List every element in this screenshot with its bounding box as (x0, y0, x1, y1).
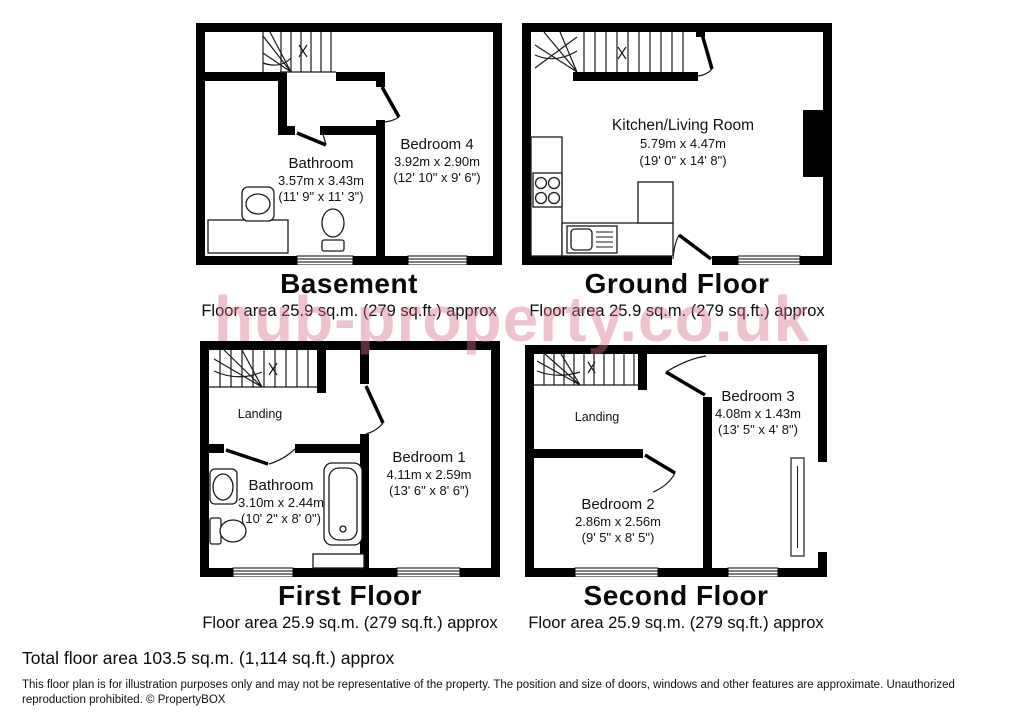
room-dim-m-bedroom3: 4.08m x 1.43m (715, 406, 801, 421)
floorplan-canvas: Bathroom 3.57m x 3.43m (11' 9" x 11' 3")… (0, 0, 1024, 717)
room-dim-m-bathroom: 3.10m x 2.44m (238, 495, 324, 510)
ground-window (738, 256, 800, 265)
room-dim-m-bedroom1: 4.11m x 2.59m (386, 467, 471, 482)
room-label-bedroom3: Bedroom 3 (721, 388, 794, 405)
second-floor-plan: Landing Bedroom 3 4.08m x 1.43m (13' 5" … (525, 345, 827, 577)
room-label-landing: Landing (238, 407, 283, 421)
kitchen-sink-fixture (567, 226, 617, 253)
room-dim-ft-bedroom1: (13' 6" x 8' 6") (389, 483, 469, 498)
room-label-landing: Landing (575, 410, 620, 424)
room-dim-ft-bathroom: (10' 2" x 8' 0") (241, 511, 321, 526)
ground-floor-title: Ground Floor (522, 268, 832, 300)
room-dim-ft-bedroom2: (9' 5" x 8' 5") (582, 530, 655, 545)
chimney-breast (803, 110, 823, 177)
basement-sink-fixture (242, 187, 274, 221)
room-dim-m-bathroom: 3.57m x 3.43m (278, 173, 364, 188)
room-label-bathroom: Bathroom (288, 155, 353, 172)
room-label-bedroom1: Bedroom 1 (392, 449, 465, 466)
first-sink-fixture (210, 469, 237, 504)
ground-floor-area: Floor area 25.9 sq.m. (279 sq.ft.) appro… (499, 302, 855, 321)
basement-floor-area: Floor area 25.9 sq.m. (279 sq.ft.) appro… (171, 302, 527, 321)
room-dim-m-kitchen: 5.79m x 4.47m (640, 136, 726, 151)
second-floor-title: Second Floor (525, 580, 827, 612)
first-floor-plan: Landing Bathroom 3.10m x 2.44m (10' 2" x… (200, 341, 500, 577)
room-dim-ft-bedroom4: (12' 10" x 9' 6") (393, 170, 480, 185)
room-label-bathroom: Bathroom (248, 477, 313, 494)
room-label-kitchen: Kitchen/Living Room (612, 117, 754, 134)
room-label-bedroom4: Bedroom 4 (400, 136, 473, 153)
room-label-bedroom2: Bedroom 2 (581, 496, 654, 513)
disclaimer-text: This floor plan is for illustration purp… (22, 678, 1010, 707)
room-dim-ft-kitchen: (19' 0" x 14' 8") (639, 153, 726, 168)
first-floor-area: Floor area 25.9 sq.m. (279 sq.ft.) appro… (172, 614, 528, 633)
basement-counter (208, 220, 288, 253)
ground-floor-plan: Kitchen/Living Room 5.79m x 4.47m (19' 0… (522, 23, 832, 265)
basement-plan: Bathroom 3.57m x 3.43m (11' 9" x 11' 3")… (196, 23, 502, 265)
total-floor-area: Total floor area 103.5 sq.m. (1,114 sq.f… (22, 648, 394, 669)
hob-fixture (533, 173, 562, 207)
room-dim-m-bedroom2: 2.86m x 2.56m (575, 514, 661, 529)
first-floor-title: First Floor (200, 580, 500, 612)
basement-toilet-fixture (322, 209, 344, 251)
room-dim-ft-bedroom3: (13' 5" x 4' 8") (718, 422, 798, 437)
room-dim-ft-bathroom: (11' 9" x 11' 3") (278, 189, 363, 204)
basement-title: Basement (196, 268, 502, 300)
second-floor-area: Floor area 25.9 sq.m. (279 sq.ft.) appro… (498, 614, 854, 633)
room-dim-m-bedroom4: 3.92m x 2.90m (394, 154, 480, 169)
